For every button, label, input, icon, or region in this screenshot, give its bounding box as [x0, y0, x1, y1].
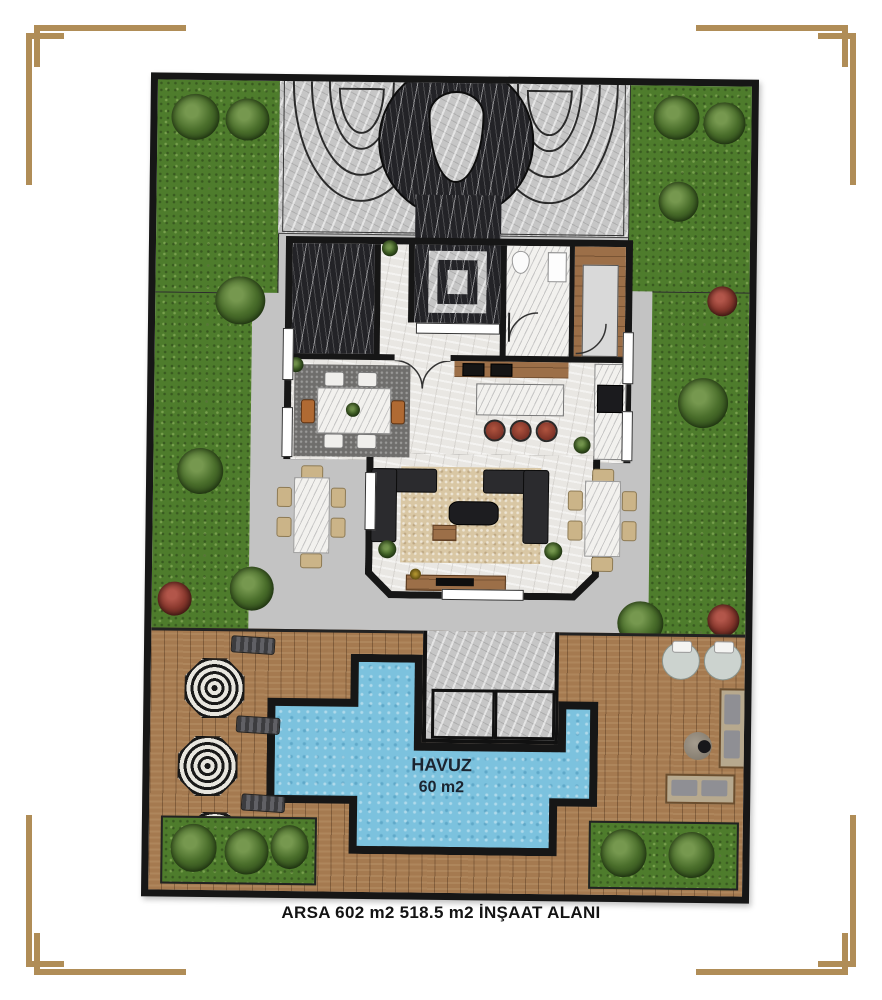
wall-vestibule-left — [408, 244, 415, 322]
indoor-plant — [544, 542, 562, 560]
outdoor-bench — [665, 774, 735, 805]
glass-door — [364, 472, 376, 530]
window — [281, 407, 293, 457]
dining-chair-end — [301, 399, 315, 423]
patio-chair — [591, 557, 613, 572]
side-table — [432, 525, 456, 541]
bush-red — [707, 286, 737, 316]
window — [621, 411, 633, 461]
tv-icon — [436, 578, 474, 586]
indoor-plant — [378, 540, 396, 558]
bush — [215, 276, 266, 325]
bar-stool — [536, 420, 558, 442]
decor-flower — [410, 569, 421, 580]
dining-chair — [324, 371, 344, 386]
patio-chair — [277, 487, 292, 507]
dining-chair-end — [391, 400, 405, 424]
indoor-plant — [382, 240, 398, 256]
wood-room-door-arc — [575, 323, 607, 355]
sink-icon — [548, 252, 567, 282]
site-plan-content: HAVUZ 60 m2 — [148, 79, 752, 896]
bar-stool — [510, 420, 532, 442]
patio-chair — [622, 491, 637, 511]
patio-table-right — [584, 481, 621, 557]
glass-door — [442, 589, 524, 601]
sun-lounger — [241, 793, 286, 813]
patio-chair — [568, 490, 583, 510]
patio-chair — [567, 520, 582, 540]
dining-table — [317, 387, 392, 434]
pool-label-name: HAVUZ — [361, 752, 521, 778]
window — [282, 328, 294, 380]
sofa-right — [522, 470, 549, 544]
pool-label-area: 60 m2 — [361, 776, 521, 800]
patio-chair — [330, 518, 345, 538]
kitchen-appliance-icon — [597, 385, 623, 413]
pool-step — [494, 690, 556, 741]
coffee-table — [449, 501, 499, 526]
stove-icon — [462, 363, 484, 376]
indoor-plant — [573, 437, 590, 454]
pool-platform — [422, 631, 559, 745]
front-door-threshold — [416, 323, 500, 335]
patio-chair — [621, 521, 636, 541]
patio-chair — [300, 553, 322, 568]
window — [622, 332, 634, 384]
patio-chair — [331, 488, 346, 508]
pool-step — [431, 689, 496, 740]
dining-chair — [323, 433, 343, 448]
sun-lounger — [231, 635, 276, 655]
kitchen-island — [476, 383, 564, 416]
patio-table-left — [293, 477, 330, 553]
bush-red — [707, 604, 739, 636]
mid-wall-left — [292, 353, 395, 360]
site-plan: HAVUZ 60 m2 — [141, 72, 759, 903]
outdoor-table — [684, 732, 712, 760]
stove-icon — [490, 363, 512, 376]
bathroom-door-arc — [508, 312, 538, 342]
plan-caption: ARSA 602 m2 518.5 m2 İNŞAAT ALANI — [0, 903, 882, 923]
dining-chair — [357, 372, 377, 387]
bar-stool — [484, 419, 506, 441]
sun-lounger — [236, 715, 281, 735]
bush — [229, 566, 274, 611]
patio-chair — [276, 517, 291, 537]
dining-chair — [356, 434, 376, 449]
bush — [171, 94, 220, 141]
entry-vestibule — [414, 245, 501, 324]
pool-label: HAVUZ 60 m2 — [361, 752, 522, 800]
dark-marble-room — [292, 243, 375, 354]
outdoor-bench — [719, 688, 750, 768]
garden-right — [648, 291, 749, 635]
